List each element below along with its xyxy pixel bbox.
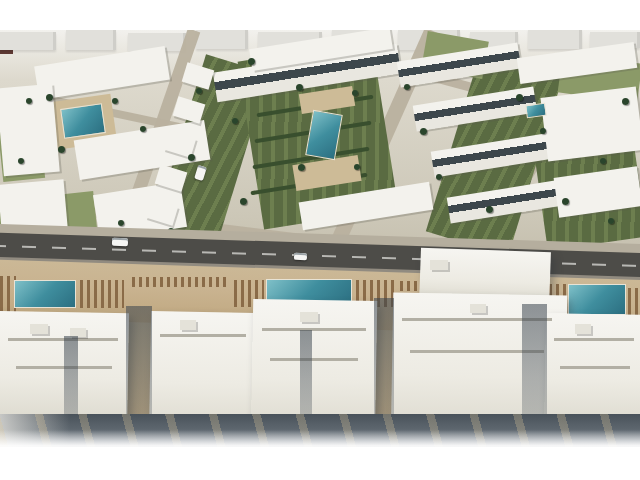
roof-line <box>270 358 358 361</box>
palm-tree <box>404 84 410 90</box>
distant-building <box>66 30 116 50</box>
roof-structure <box>300 312 318 322</box>
palm-tree <box>18 158 24 164</box>
screenshot-frame: Aerial 3D architectural rendering of a w… <box>0 0 640 480</box>
resort-pool <box>568 284 626 315</box>
distant-building <box>528 30 582 49</box>
palm-tree <box>600 158 606 164</box>
palm-tree <box>486 206 493 213</box>
roof-line <box>262 328 366 331</box>
palm-tree <box>420 128 427 135</box>
roof-line <box>554 338 634 341</box>
image-caption: Aerial 3D architectural rendering of a w… <box>0 0 1 1</box>
palm-tree <box>112 98 118 104</box>
distant-building <box>196 30 248 49</box>
resort-pool <box>14 280 76 308</box>
aerial-render-photo <box>0 30 640 447</box>
roof-structure <box>180 320 196 330</box>
palm-tree <box>296 84 303 91</box>
scene-objects <box>0 30 640 447</box>
roof-structure <box>30 324 48 334</box>
sun-lounger-row <box>132 277 228 287</box>
palm-tree <box>46 94 53 101</box>
palm-tree <box>58 146 65 153</box>
courtyard-pool <box>525 103 547 119</box>
roof-structure <box>470 304 486 313</box>
car <box>112 238 128 247</box>
palm-tree <box>608 218 614 224</box>
palm-tree <box>26 98 32 104</box>
palm-tree <box>540 128 546 134</box>
palm-tree <box>118 220 124 226</box>
roof-line <box>8 338 118 341</box>
palm-tree <box>516 94 523 101</box>
roof-line <box>560 366 630 369</box>
courtyard-pool <box>60 103 106 139</box>
distant-building <box>0 32 56 50</box>
palm-tree <box>298 164 305 171</box>
palm-tree <box>354 164 360 170</box>
palm-tree <box>622 98 629 105</box>
car <box>294 253 307 260</box>
apartment-building <box>34 46 170 100</box>
roof-structure <box>430 260 448 270</box>
palm-tree <box>562 198 569 205</box>
palm-tree <box>436 174 442 180</box>
palm-tree <box>140 126 146 132</box>
palm-tree <box>188 154 195 161</box>
photo-bottom-fade <box>0 430 640 447</box>
sun-lounger-row <box>628 288 640 316</box>
palm-tree <box>240 198 247 205</box>
sun-lounger-row <box>80 280 124 308</box>
roof-structure <box>575 324 591 334</box>
palm-tree <box>248 58 255 65</box>
palm-tree <box>352 90 358 96</box>
palm-tree <box>196 88 202 94</box>
roof-line <box>160 334 246 337</box>
palm-tree <box>232 118 238 124</box>
